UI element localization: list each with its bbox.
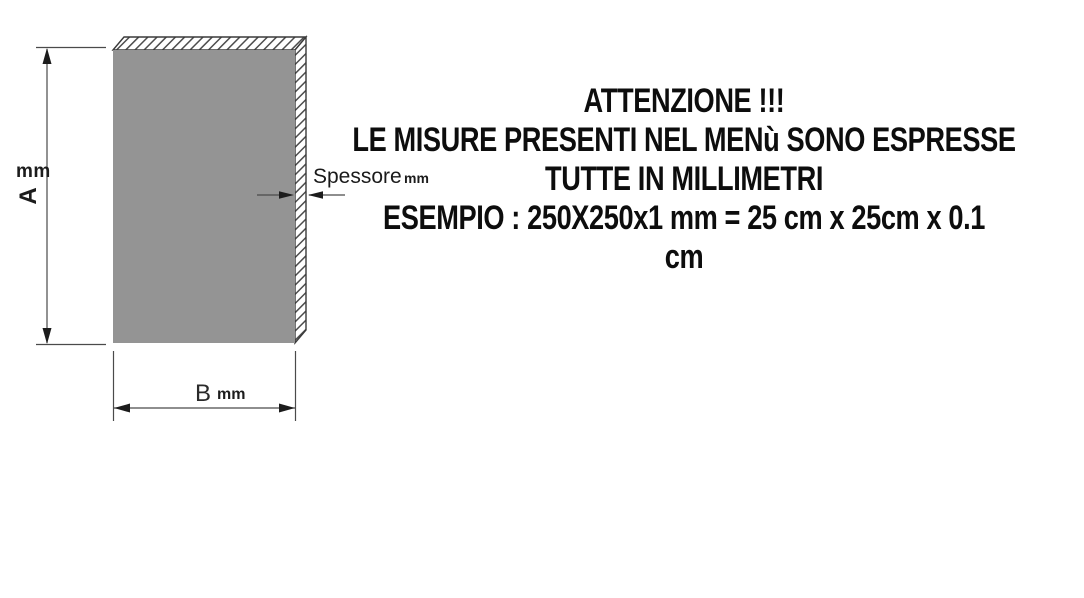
dimension-a-arrow-down-icon [43,328,52,344]
side-b-unit-label: mm [217,387,245,403]
side-a-unit-label: mm [16,162,51,181]
notice-line-attention: ATTENZIONE !!! [339,82,1029,121]
dimension-b-arrow-left-icon [114,404,130,413]
product-measurement-figure: mm A B mm Spessore mm ATTENZIONE !!! LE … [0,0,1084,598]
side-a-label: A [17,181,41,211]
dimension-b-arrow-right-icon [279,404,295,413]
notice-line-millimetri: TUTTE IN MILLIMETRI [339,160,1029,199]
dimension-a-arrow-up-icon [43,48,52,64]
dimension-a [36,48,106,345]
thickness-arrow-left-icon [308,191,323,199]
plate-face [113,50,295,343]
notice-line-example: ESEMPIO : 250X250x1 mm = 25 cm x 25cm x … [339,199,1029,238]
side-b-label: B [195,382,211,406]
measurement-notice: ATTENZIONE !!! LE MISURE PRESENTI NEL ME… [339,82,1029,277]
notice-line-example-wrap: cm [339,238,1029,277]
plate-top-edge-hatch [113,37,306,50]
plate-right-edge-hatch [295,37,306,343]
notice-line-measures: LE MISURE PRESENTI NEL MENù SONO ESPRESS… [339,121,1029,160]
plate-shape [113,37,306,343]
